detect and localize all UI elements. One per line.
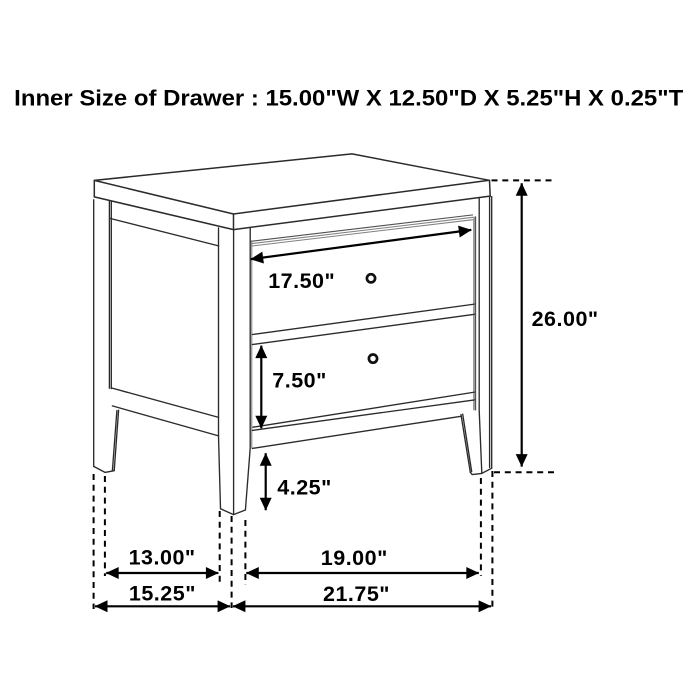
- svg-text:17.50": 17.50": [268, 269, 335, 293]
- svg-text:15.25": 15.25": [129, 582, 196, 606]
- svg-text:26.00": 26.00": [532, 307, 599, 331]
- svg-text:19.00": 19.00": [321, 546, 388, 570]
- svg-text:13.00": 13.00": [129, 546, 196, 570]
- svg-text:Inner Size of Drawer : 15.00"W: Inner Size of Drawer : 15.00"W X 12.50"D…: [14, 85, 684, 110]
- svg-text:21.75": 21.75": [323, 582, 390, 606]
- svg-text:7.50": 7.50": [272, 369, 327, 393]
- svg-text:4.25": 4.25": [277, 476, 332, 500]
